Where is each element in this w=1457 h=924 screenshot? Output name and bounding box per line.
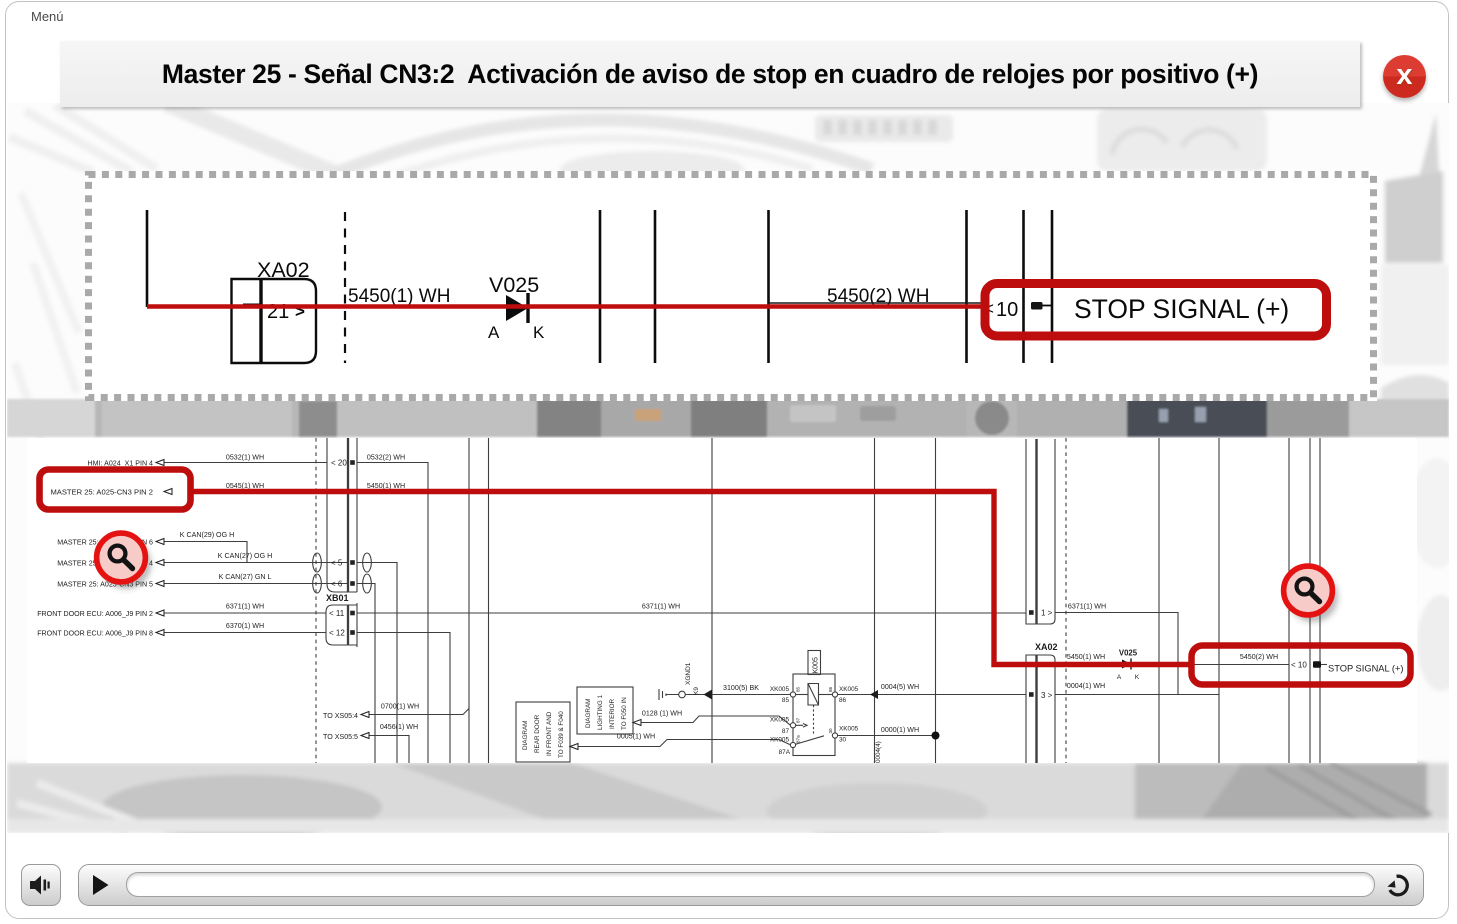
svg-text:6371(1) WH: 6371(1) WH — [1068, 603, 1106, 611]
svg-text:V025: V025 — [1119, 649, 1138, 658]
svg-text:K CAN(27) OG H: K CAN(27) OG H — [218, 552, 272, 560]
svg-text:0456(1) WH: 0456(1) WH — [380, 723, 418, 731]
svg-text:K: K — [533, 323, 545, 342]
svg-text:< 10: < 10 — [1291, 661, 1307, 670]
svg-text:DIAGRAM: DIAGRAM — [522, 721, 529, 750]
svg-text:TO F050 IN: TO F050 IN — [621, 697, 628, 730]
svg-text:3100(5) BK: 3100(5) BK — [723, 684, 759, 692]
svg-text:0000(1) WH: 0000(1) WH — [881, 726, 919, 734]
svg-text:XK005: XK005 — [839, 726, 859, 733]
svg-text:30: 30 — [828, 728, 833, 734]
svg-text:87: 87 — [782, 728, 790, 735]
svg-text:XK005: XK005 — [770, 717, 790, 724]
svg-text:85: 85 — [782, 697, 790, 704]
svg-text:5450(2) WH: 5450(2) WH — [827, 286, 929, 307]
svg-text:< 12: < 12 — [329, 629, 345, 638]
svg-text:A: A — [488, 323, 500, 342]
svg-text:0532(1) WH: 0532(1) WH — [226, 454, 264, 462]
svg-text:0128 (1) WH: 0128 (1) WH — [642, 710, 682, 718]
svg-text:INTERIOR: INTERIOR — [609, 698, 616, 729]
svg-text:5450(1) WH: 5450(1) WH — [348, 286, 450, 307]
svg-text:0004(4): 0004(4) — [875, 741, 882, 763]
svg-text:XA02: XA02 — [1035, 642, 1058, 652]
svg-text:0532(2) WH: 0532(2) WH — [367, 454, 405, 462]
svg-text:XB01: XB01 — [326, 593, 349, 603]
svg-text:6370(1) WH: 6370(1) WH — [226, 622, 264, 630]
svg-text:MASTER 25: A025-CN3 PIN 2: MASTER 25: A025-CN3 PIN 2 — [50, 488, 153, 497]
svg-text:6371(1) WH: 6371(1) WH — [226, 603, 264, 611]
svg-text:30: 30 — [839, 737, 847, 744]
svg-text:REAR DOOR: REAR DOOR — [534, 714, 541, 753]
svg-text:XK005: XK005 — [770, 737, 790, 744]
svg-text:TO F039 & F040: TO F039 & F040 — [558, 711, 565, 758]
svg-text:0004(1) WH: 0004(1) WH — [1067, 682, 1105, 690]
svg-text:1 >: 1 > — [1041, 609, 1053, 618]
svg-text:TO XS05:4: TO XS05:4 — [323, 712, 358, 720]
svg-text:XK005: XK005 — [839, 686, 859, 693]
svg-text:5450(2) WH: 5450(2) WH — [1240, 653, 1278, 661]
svg-text:10: 10 — [996, 299, 1018, 321]
svg-text:XK005: XK005 — [770, 686, 790, 693]
svg-text:86: 86 — [839, 697, 847, 704]
svg-text:TO XS05:5: TO XS05:5 — [323, 733, 358, 741]
svg-text:3 >: 3 > — [1041, 691, 1053, 700]
svg-text:0545(1) WH: 0545(1) WH — [226, 482, 264, 490]
svg-text:K CAN(29) OG H: K CAN(29) OG H — [180, 531, 234, 539]
svg-text:STOP SIGNAL (+): STOP SIGNAL (+) — [1074, 294, 1289, 324]
svg-text:5450(1) WH: 5450(1) WH — [1067, 653, 1105, 661]
svg-text:K CAN(27) GN L: K CAN(27) GN L — [219, 573, 272, 581]
svg-text:K005: K005 — [813, 657, 820, 673]
svg-text:86: 86 — [828, 686, 833, 692]
svg-text:IN FRONT AND: IN FRONT AND — [546, 711, 553, 756]
svg-text:< 11: < 11 — [329, 609, 345, 618]
svg-text:87a: 87a — [796, 735, 801, 743]
svg-text:V025: V025 — [489, 273, 539, 297]
svg-text:0004(5) WH: 0004(5) WH — [881, 683, 919, 691]
svg-text:FRONT DOOR ECU: A006_J9 PIN 2: FRONT DOOR ECU: A006_J9 PIN 2 — [37, 610, 153, 618]
svg-text:< 5: < 5 — [331, 559, 343, 568]
svg-text:K: K — [1135, 674, 1140, 681]
svg-text:A: A — [1117, 674, 1122, 681]
svg-text:DIAGRAM: DIAGRAM — [585, 699, 592, 728]
svg-text:STOP SIGNAL (+): STOP SIGNAL (+) — [1328, 664, 1404, 674]
svg-text:0700(1) WH: 0700(1) WH — [381, 703, 419, 711]
svg-text:87A: 87A — [779, 749, 791, 756]
svg-text:< 6: < 6 — [331, 580, 343, 589]
svg-text:FRONT DOOR ECU: A006_J9 PIN 8: FRONT DOOR ECU: A006_J9 PIN 8 — [37, 630, 153, 638]
svg-text:LIGHTING 1: LIGHTING 1 — [597, 695, 604, 730]
svg-text:85: 85 — [796, 686, 801, 692]
svg-text:XGND1: XGND1 — [685, 662, 692, 685]
svg-text:0005(1) WH: 0005(1) WH — [617, 733, 655, 741]
svg-text:6371(1) WH: 6371(1) WH — [642, 603, 680, 611]
svg-text:87: 87 — [796, 717, 801, 723]
svg-text:< 20: < 20 — [331, 459, 347, 468]
svg-text:5450(1) WH: 5450(1) WH — [367, 482, 405, 490]
svg-text:K9: K9 — [693, 687, 700, 695]
